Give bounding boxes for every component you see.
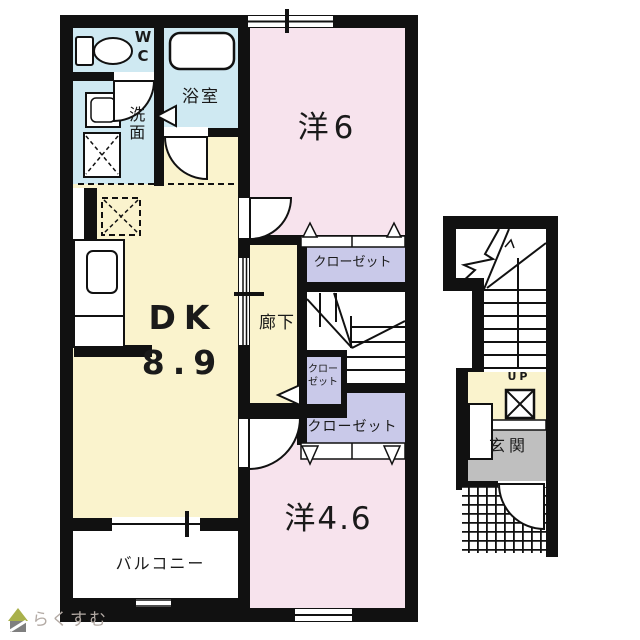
wc-label-line1: W [129,28,157,47]
western46-label: 洋4.6 [250,501,407,538]
up-label: UP [494,370,544,383]
window-tick-2 [185,511,189,537]
closet-upper-label: クローゼット [299,255,406,271]
kitchen-partition-stub [84,188,97,241]
floorplan-canvas: W C 浴室 洗面 洋6 DK 8.9 廊下 クローゼット クロー ゼット クロ… [0,0,640,640]
balcony-label: バルコニー [83,554,238,573]
entrance-step-edge [492,420,546,430]
site-logo-text: らくすむ [32,610,108,630]
toilet-tank-icon [76,37,93,65]
closet-small-line2: ゼット [301,376,345,389]
bathroom-label: 浴室 [164,87,238,107]
closet-lower-label: クローゼット [299,419,406,436]
toilet-bowl-icon [94,38,132,64]
dk-label: DK 8.9 [113,295,253,385]
hallway-label: 廊下 [250,313,304,333]
dk-label-size: 8.9 [113,340,253,385]
bathtub-icon [170,33,234,69]
closet-small-label: クロー ゼット [301,363,345,389]
floorplan-drawing [0,0,640,640]
closet-small-line1: クロー [301,363,345,376]
dk-label-name: DK [113,295,253,340]
washroom-label: 洗面 [126,106,145,170]
wc-label-line2: C [129,47,157,66]
window-tick [285,9,289,33]
entrance-label: 玄関 [472,436,546,455]
wc-label: W C [129,28,157,66]
western6-label: 洋6 [250,110,406,147]
